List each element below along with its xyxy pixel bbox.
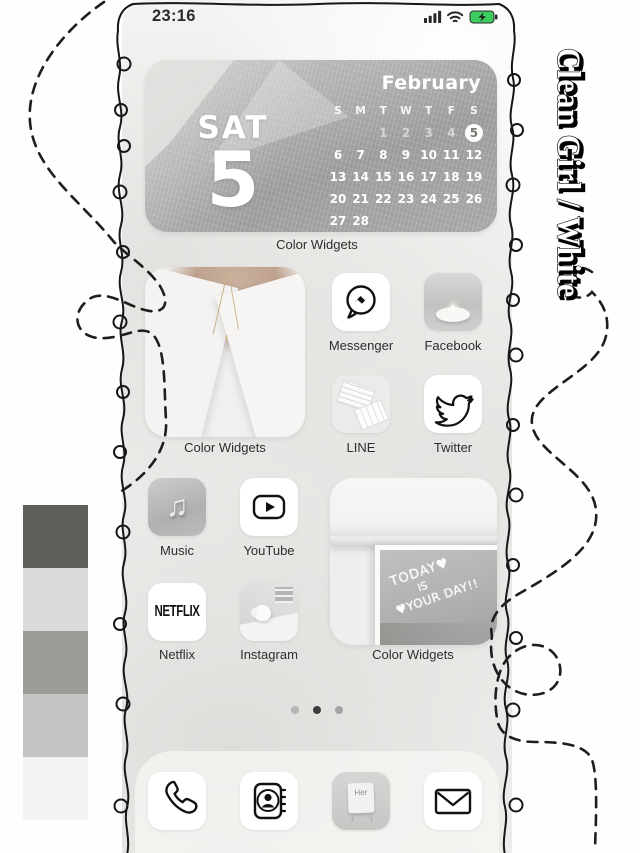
calendar-widget[interactable]: SAT 5 February SMTWTFS123456789101112131… — [145, 60, 497, 232]
app-label-twitter: Twitter — [393, 440, 512, 455]
mirror-glass: TODAY♥ IS ♥YOUR DAY!! — [375, 545, 497, 645]
app-icon-youtube[interactable] — [240, 478, 298, 536]
status-icons — [424, 10, 498, 24]
calendar-date: 2 — [395, 124, 417, 142]
calendar-date: 21 — [350, 190, 372, 208]
calendar-weekday: S — [327, 102, 349, 120]
calendar-date — [440, 212, 462, 230]
calendar-date — [350, 124, 372, 142]
battery-charging-icon — [470, 11, 498, 23]
app-label-instagram: Instagram — [209, 647, 329, 662]
status-time: 23:16 — [152, 7, 196, 26]
app-icon-music[interactable]: ♫ — [148, 478, 206, 536]
app-icon-instagram[interactable] — [240, 583, 298, 641]
mirror-reflection — [380, 623, 497, 645]
app-icon-messenger[interactable] — [332, 273, 390, 331]
canvas: 23:16 SAT 5 Feb — [0, 0, 640, 853]
calendar-date: 15 — [372, 168, 394, 186]
contacts-icon — [245, 777, 293, 825]
calendar-date: 9 — [395, 146, 417, 164]
page-dot[interactable] — [313, 706, 321, 714]
youtube-icon — [245, 483, 293, 531]
calendar-date — [372, 212, 394, 230]
calendar-grid: SMTWTFS123456789101112131415161718192021… — [327, 102, 485, 232]
calendar-weekday: T — [418, 102, 440, 120]
mirror-widget[interactable]: TODAY♥ IS ♥YOUR DAY!! — [330, 478, 497, 645]
palette-swatch — [23, 568, 88, 631]
app-icon-netflix[interactable]: NETFLIX — [148, 583, 206, 641]
calendar-widget-label: Color Widgets — [217, 237, 417, 252]
calendar-month-title: February — [382, 72, 481, 94]
calendar-date: 14 — [350, 168, 372, 186]
candle-glass — [436, 307, 470, 322]
calendar-date: 4 — [440, 124, 462, 142]
calendar-date: 17 — [418, 168, 440, 186]
calendar-date — [327, 124, 349, 142]
page-dot[interactable] — [335, 706, 343, 714]
calendar-weekday: F — [440, 102, 462, 120]
photo-widget[interactable] — [145, 267, 305, 437]
photo-pendant — [225, 335, 228, 340]
calendar-date: 5 — [465, 124, 483, 142]
calendar-date: 6 — [327, 146, 349, 164]
her-card: Her — [347, 783, 374, 814]
calendar-date: 25 — [440, 190, 462, 208]
palette-swatch — [23, 694, 88, 757]
calendar-date — [395, 212, 417, 230]
phone-screen: 23:16 SAT 5 Feb — [122, 0, 512, 853]
photo-shirt-right — [216, 272, 305, 437]
netflix-logo-text: NETFLIX — [154, 604, 199, 620]
calendar-date: 8 — [372, 146, 394, 164]
calendar-weekday: M — [350, 102, 372, 120]
calendar-date: 13 — [327, 168, 349, 186]
page-dot[interactable] — [291, 706, 299, 714]
theme-title-vertical: Clean Girl / White Clean Girl / White — [550, 48, 589, 301]
calendar-date: 7 — [350, 146, 372, 164]
mirror-mantel — [330, 478, 497, 545]
photo-shirt-left — [145, 267, 238, 437]
music-note-icon: ♫ — [166, 490, 189, 524]
palette-swatch — [23, 631, 88, 694]
dock-icon-phone[interactable] — [148, 772, 206, 830]
palette-swatch — [23, 757, 88, 820]
calendar-date: 19 — [463, 168, 485, 186]
calendar-date — [463, 212, 485, 230]
dock-icon-mail[interactable] — [424, 772, 482, 830]
calendar-date: 23 — [395, 190, 417, 208]
mirror-handwriting: TODAY♥ IS ♥YOUR DAY!! — [388, 549, 480, 617]
theme-title-shadow: Clean Girl / White — [553, 51, 589, 301]
calendar-date: 1 — [372, 124, 394, 142]
calendar-date: 24 — [418, 190, 440, 208]
messenger-icon — [337, 278, 385, 326]
calendar-date: 26 — [463, 190, 485, 208]
calendar-date: 28 — [350, 212, 372, 230]
dock-icon-her-photo[interactable]: Her — [332, 772, 390, 830]
app-icon-facebook[interactable] — [424, 273, 482, 331]
instagram-puppy — [254, 605, 271, 621]
dock-icon-contacts[interactable] — [240, 772, 298, 830]
calendar-date: 10 — [418, 146, 440, 164]
calendar-date: 18 — [440, 168, 462, 186]
calendar-date: 16 — [395, 168, 417, 186]
calendar-date: 12 — [463, 146, 485, 164]
app-icon-line[interactable] — [332, 375, 390, 433]
mirror-widget-label: Color Widgets — [353, 647, 473, 662]
calendar-day-number: 5 — [173, 134, 293, 225]
calendar-date — [418, 212, 440, 230]
her-card-stand — [351, 817, 373, 822]
cellular-signal-icon — [424, 11, 441, 23]
app-label-facebook: Facebook — [393, 338, 512, 353]
calendar-date: 11 — [440, 146, 462, 164]
calendar-date: 20 — [327, 190, 349, 208]
photo-widget-label: Color Widgets — [165, 440, 285, 455]
app-icon-twitter[interactable] — [424, 375, 482, 433]
calendar-weekday: W — [395, 102, 417, 120]
wifi-icon — [448, 12, 462, 21]
theme-title: Clean Girl / White — [550, 48, 586, 298]
color-palette — [23, 505, 88, 820]
calendar-date: 27 — [327, 212, 349, 230]
calendar-weekday: S — [463, 102, 485, 120]
page-dots[interactable] — [291, 706, 343, 714]
mail-icon — [429, 777, 477, 825]
calendar-date: 3 — [418, 124, 440, 142]
app-label-youtube: YouTube — [209, 543, 329, 558]
phone-icon — [153, 777, 201, 825]
calendar-weekday: T — [372, 102, 394, 120]
twitter-icon — [429, 380, 477, 428]
calendar-date: 22 — [372, 190, 394, 208]
palette-swatch — [23, 505, 88, 568]
instagram-window — [275, 587, 293, 603]
